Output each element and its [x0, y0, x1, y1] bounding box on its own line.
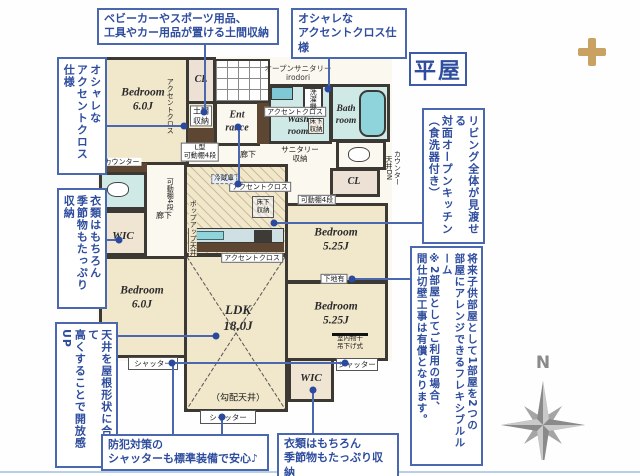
connector-dot — [235, 124, 242, 131]
callout-line — [274, 222, 422, 224]
label-sanitary-storage: サニタリー 収納 — [281, 145, 319, 163]
connector-dot — [116, 237, 123, 244]
callout-line — [172, 363, 174, 434]
label-bedroom-nw: Bedroom 6.0J — [121, 86, 164, 115]
wash-basin — [271, 87, 293, 100]
callout-flexible-room: 将来子供部屋として1部屋を2つの 部屋にアレンジできるフレキシブルルーム ※2部… — [410, 246, 483, 466]
connector-dot — [310, 387, 317, 394]
label-sloped-ceiling: （勾配天井） — [211, 394, 265, 405]
label-indoor-drying: 室内物干 吊下げ式 — [337, 335, 363, 351]
label-refrigerator: 冷蔵庫 — [211, 174, 237, 184]
callout-line — [172, 362, 346, 364]
label-entrance: Ent rance — [225, 110, 248, 135]
connector-dot — [169, 360, 176, 367]
connector-dot — [271, 220, 278, 227]
callout-line — [204, 38, 206, 112]
label-base-board: 下地有 — [321, 274, 348, 284]
callout-line — [238, 126, 240, 185]
label-ldk: LDK 18.0J — [223, 302, 252, 335]
entrance-porch-tiles — [214, 59, 270, 103]
label-closet-east: CL — [348, 176, 361, 189]
shutter-tag-bottom: シャッター — [200, 410, 256, 424]
bathtub — [359, 90, 386, 137]
label-underfloor-kitchen: 床下 収納 — [257, 199, 270, 215]
label-hallway-north: 廊下 — [240, 150, 256, 160]
label-washroom: Wash room — [287, 115, 308, 139]
label-counter-west: カウンター — [103, 158, 142, 166]
label-hallway-west: 廊下 — [156, 211, 172, 221]
page-title: 平屋 — [409, 52, 467, 86]
callout-security-shutter: 防犯対策の シャッターも標準装備で安心♪ — [101, 434, 269, 471]
kitchen-sink — [196, 231, 224, 240]
doma-shelf — [188, 128, 214, 144]
label-washing-machine: 洗濯機 — [309, 89, 317, 110]
label-shelf-west: 可動棚4段 — [166, 178, 174, 210]
connector-dot — [235, 181, 242, 188]
connector-dot — [342, 360, 349, 367]
callout-doma-storage: ベビーカーやスポーツ用品、 工具やカー用品が置ける土間収納 — [97, 8, 279, 45]
callout-line — [312, 390, 314, 433]
callout-open-kitchen: リビング全体が見渡せる 対面オープンキッチン （食洗器付き） — [422, 108, 485, 244]
label-bedroom-ne: Bedroom 5.25J — [314, 226, 357, 255]
compass-rose-icon — [498, 370, 588, 460]
label-bedroom-sw: Bedroom 6.0J — [120, 284, 163, 313]
flyer-floorplan: ベビーカーやスポーツ用品、 工具やカー用品が置ける土間収納 オシャレな アクセン… — [0, 0, 640, 476]
connector-dot — [201, 109, 208, 116]
label-open-sanitary: オープンサニタリー irodori — [264, 64, 331, 82]
connector-dot — [213, 333, 220, 340]
connector-dot — [349, 276, 356, 283]
toilet-icon — [107, 182, 129, 197]
label-shelf-east: 可動棚4段 — [298, 195, 336, 205]
label-underfloor-wash: 床下 収納 — [310, 118, 323, 134]
callout-clothes-left: 衣類はもちろん 季節物もたっぷり収納 — [57, 188, 107, 309]
callout-clothes-bottom: 衣類はもちろん 季節物もたっぷり収納 — [277, 433, 399, 476]
callout-accent-top: オシャレな アクセントクロス仕様 — [291, 8, 407, 59]
kitchen-counter-front — [188, 243, 284, 252]
connector-dot — [181, 123, 188, 130]
label-bathroom: Bath room — [336, 104, 357, 128]
label-popup-ceiling: ポップアップ天井 — [189, 200, 197, 256]
callout-accent-left: オシャレな アクセントクロス仕様 — [57, 57, 107, 175]
callout-line — [352, 278, 410, 280]
label-l-shelf: L型 可動棚4段 — [181, 143, 219, 162]
connector-dot — [219, 414, 226, 421]
label-counter-ceiling-dn: カウンター 天井DN — [385, 151, 402, 186]
toilet-icon — [348, 147, 370, 162]
label-bedroom-se: Bedroom 5.25J — [314, 300, 357, 329]
plus-ornament-icon — [588, 38, 596, 66]
label-wic-south: WIC — [300, 372, 321, 386]
label-accent-cross-kitchen-s: アクセントクロス — [221, 253, 283, 263]
connector-dot — [325, 86, 332, 93]
kitchen-stove — [254, 230, 272, 242]
